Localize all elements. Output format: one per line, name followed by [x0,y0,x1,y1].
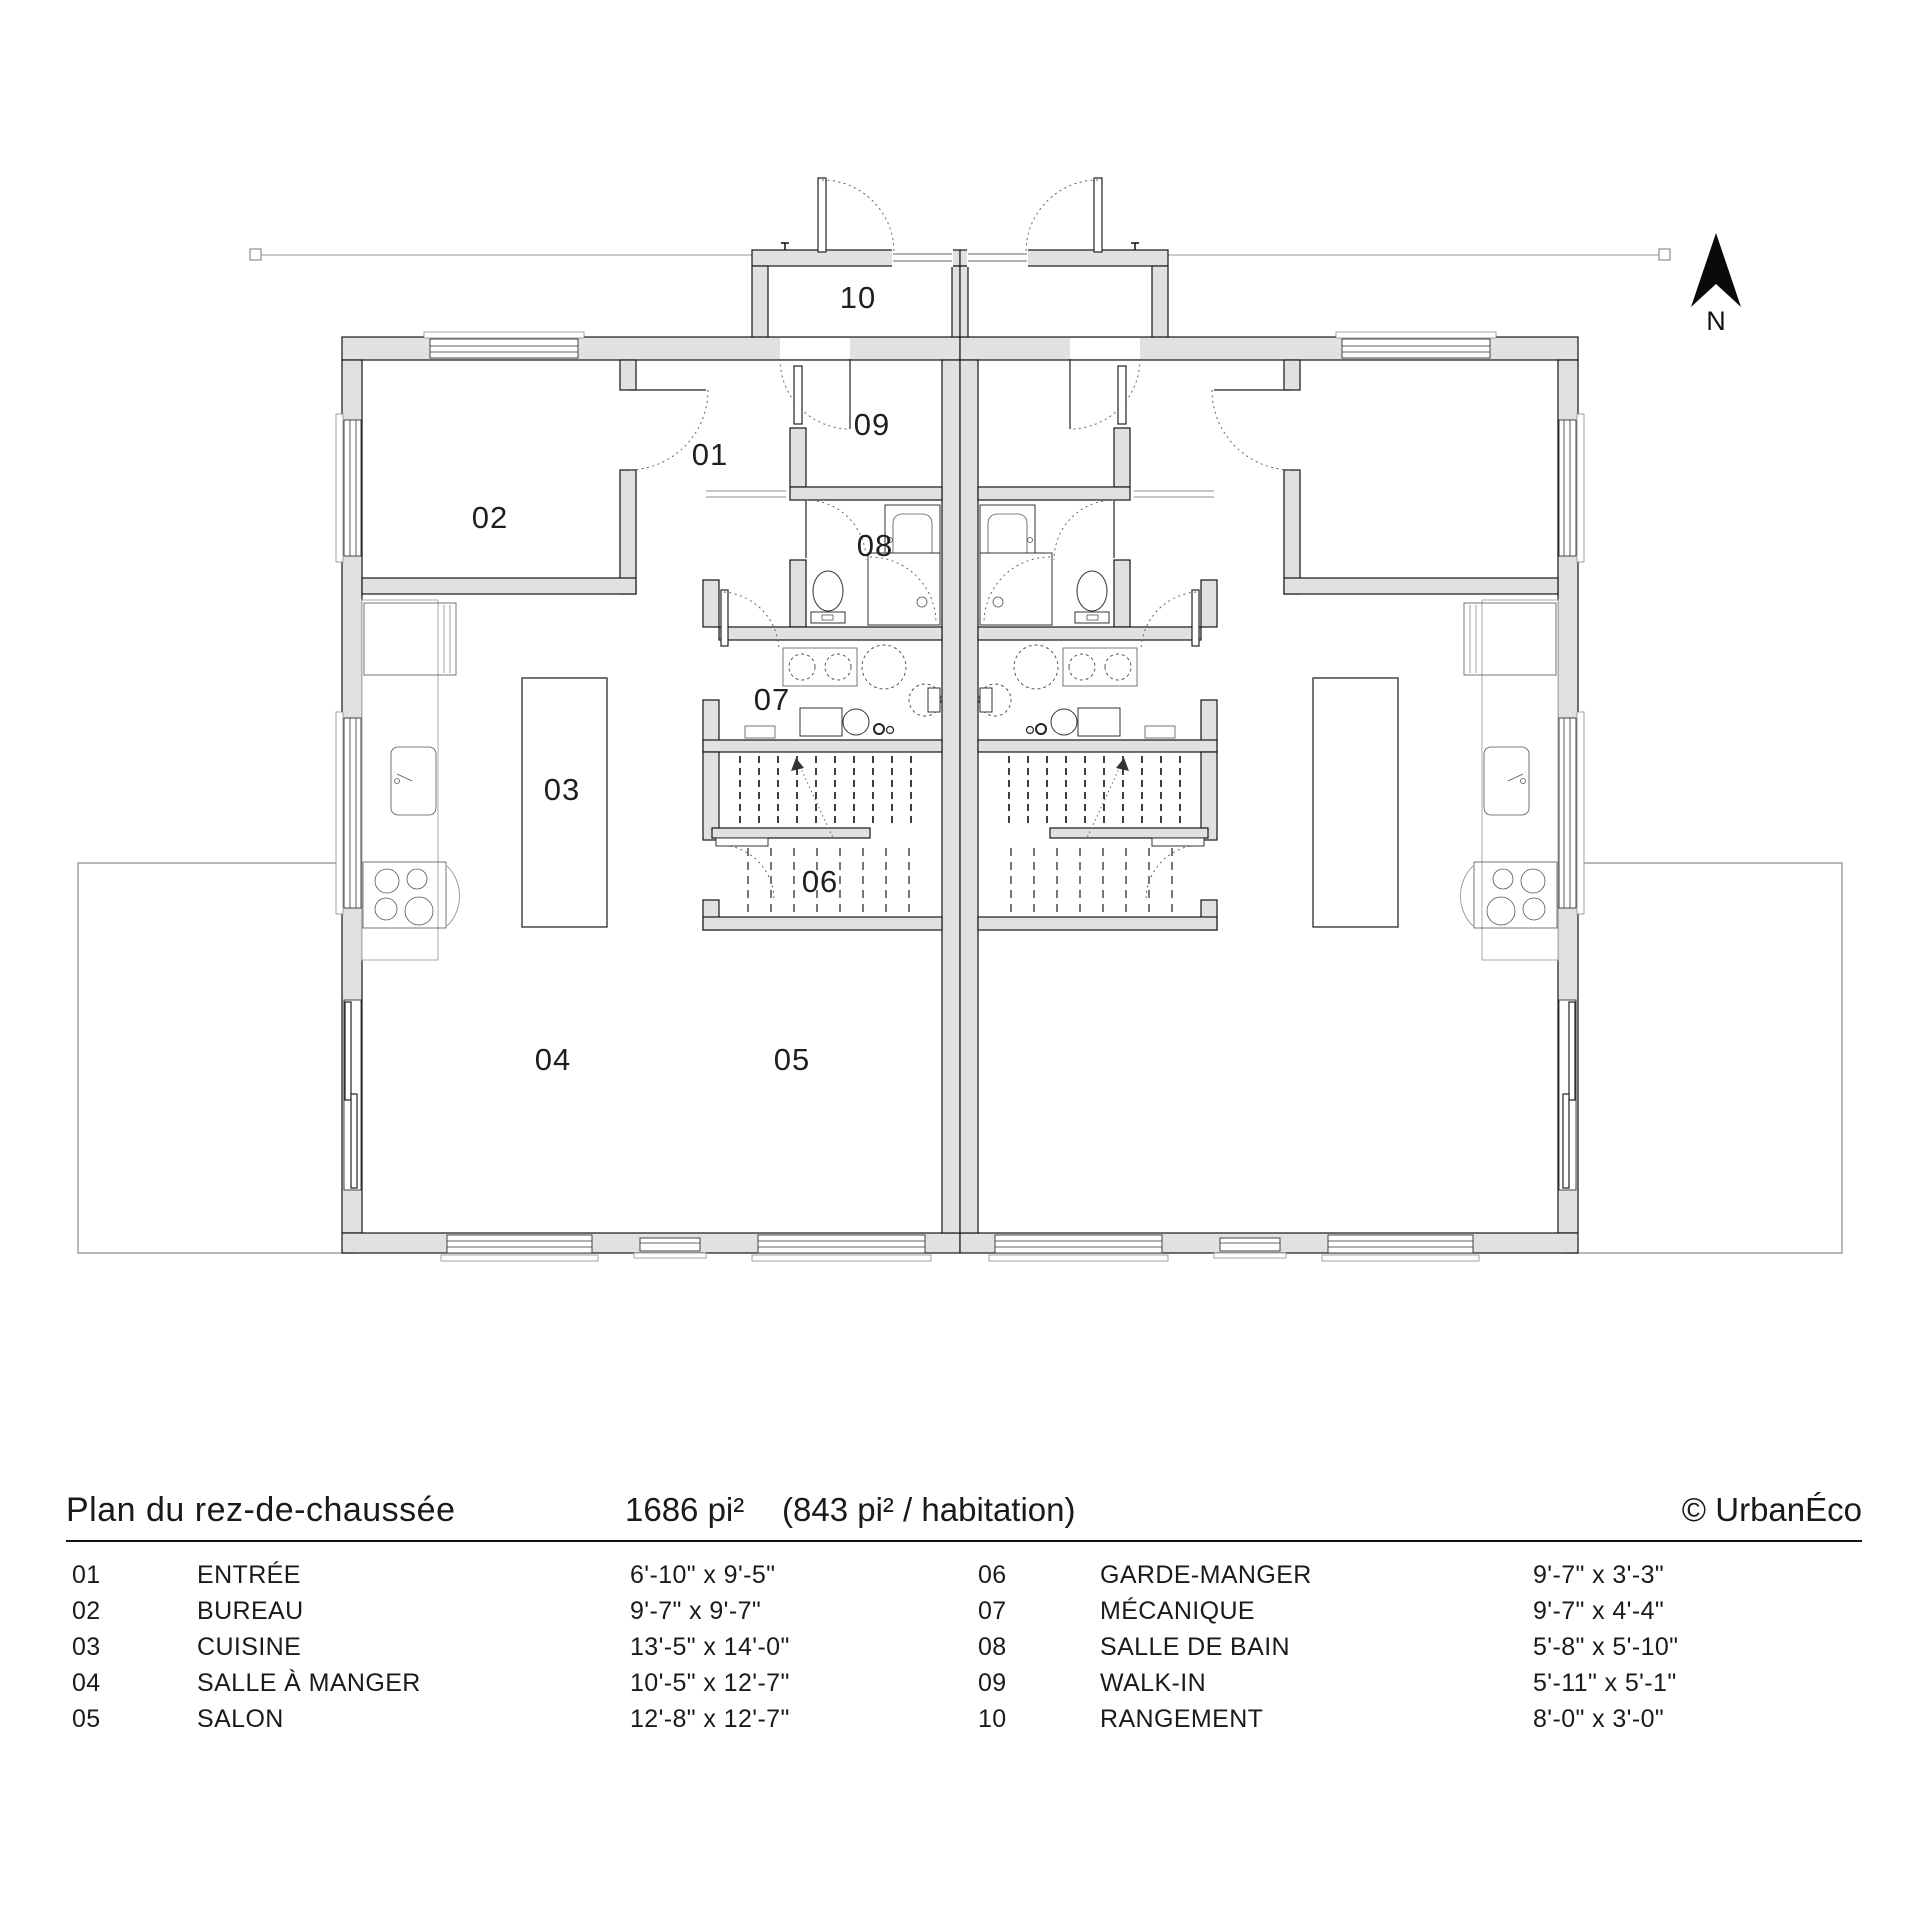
legend-dims: 8'-0" x 3'-0" [1533,1705,1664,1734]
room-label-02: 02 [472,500,508,535]
legend-row: 01 ENTRÉE 6'-10" x 9'-5" 06 GARDE-MANGER… [0,1561,1920,1591]
total-area: 1686 pi² [625,1491,744,1529]
legend-num: 03 [72,1633,101,1662]
room-label-08: 08 [857,528,893,563]
legend-name: BUREAU [197,1597,304,1626]
legend-dims: 9'-7" x 3'-3" [1533,1561,1664,1590]
legend-name: RANGEMENT [1100,1705,1263,1734]
floor-plan-drawing: 10 02 01 09 08 07 03 06 04 05 N [0,0,1920,1480]
legend-row: 04 SALLE À MANGER 10'-5" x 12'-7" 09 WAL… [0,1669,1920,1699]
room-label-07: 07 [754,682,790,717]
legend-name: MÉCANIQUE [1100,1597,1255,1626]
north-label: N [1706,306,1726,336]
room-label-06: 06 [802,864,838,899]
legend-num: 05 [72,1705,101,1734]
area-per-dwelling: (843 pi² / habitation) [782,1491,1076,1529]
room-label-05: 05 [774,1042,810,1077]
title-divider [66,1540,1862,1542]
legend-row: 02 BUREAU 9'-7" x 9'-7" 07 MÉCANIQUE 9'-… [0,1597,1920,1627]
room-label-01: 01 [692,437,728,472]
legend-dims: 12'-8" x 12'-7" [630,1705,790,1734]
legend-row: 03 CUISINE 13'-5" x 14'-0" 08 SALLE DE B… [0,1633,1920,1663]
legend-row: 05 SALON 12'-8" x 12'-7" 10 RANGEMENT 8'… [0,1705,1920,1735]
legend-dims: 9'-7" x 9'-7" [630,1597,761,1626]
legend-dims: 13'-5" x 14'-0" [630,1633,790,1662]
unit-right [960,178,1842,1261]
room-label-10: 10 [840,280,876,315]
floor-plan-sheet: 10 02 01 09 08 07 03 06 04 05 N Plan du … [0,0,1920,1920]
legend-dims: 9'-7" x 4'-4" [1533,1597,1664,1626]
legend-num: 07 [978,1597,1007,1626]
legend-name: SALLE DE BAIN [1100,1633,1290,1662]
legend-num: 04 [72,1669,101,1698]
legend-num: 10 [978,1705,1007,1734]
legend-name: CUISINE [197,1633,301,1662]
unit-left [78,178,960,1261]
legend-dims: 10'-5" x 12'-7" [630,1669,790,1698]
legend-name: WALK-IN [1100,1669,1206,1698]
room-label-09: 09 [854,407,890,442]
page-title: Plan du rez-de-chaussée [66,1491,456,1530]
legend-num: 08 [978,1633,1007,1662]
north-arrow-icon: N [1691,233,1741,336]
legend-num: 09 [978,1669,1007,1698]
legend-dims: 5'-11" x 5'-1" [1533,1669,1677,1698]
legend-name: ENTRÉE [197,1561,301,1590]
room-label-04: 04 [535,1042,571,1077]
legend-num: 01 [72,1561,101,1590]
copyright-credit: © UrbanÉco [1682,1491,1862,1529]
room-label-03: 03 [544,772,580,807]
legend-dims: 5'-8" x 5'-10" [1533,1633,1678,1662]
title-row: Plan du rez-de-chaussée 1686 pi² (843 pi… [0,1491,1920,1533]
legend-name: SALON [197,1705,284,1734]
legend-name: SALLE À MANGER [197,1669,421,1698]
legend-dims: 6'-10" x 9'-5" [630,1561,775,1590]
legend-num: 02 [72,1597,101,1626]
legend-num: 06 [978,1561,1007,1590]
legend-name: GARDE-MANGER [1100,1561,1312,1590]
